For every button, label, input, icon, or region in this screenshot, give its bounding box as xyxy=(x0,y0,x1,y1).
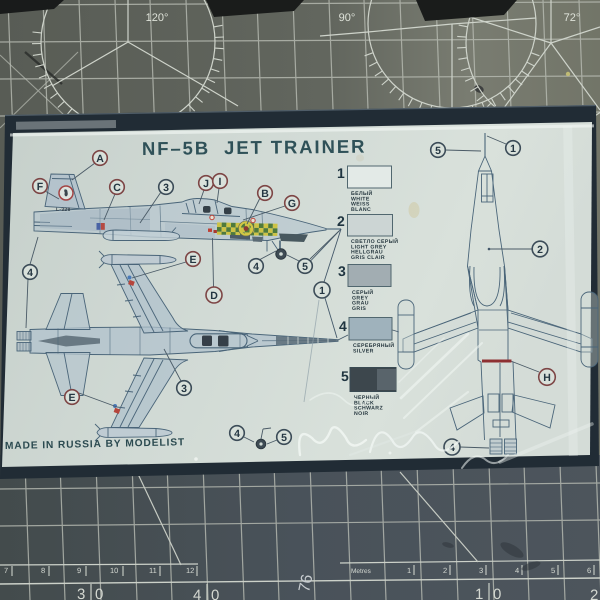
svg-text:1: 1 xyxy=(407,566,411,575)
svg-text:2: 2 xyxy=(537,244,543,256)
svg-text:SILVER: SILVER xyxy=(353,348,374,354)
svg-text:3: 3 xyxy=(163,182,169,194)
svg-text:3: 3 xyxy=(479,566,483,575)
svg-text:0: 0 xyxy=(211,587,219,600)
svg-text:L-328: L-328 xyxy=(56,207,71,213)
svg-text:120°: 120° xyxy=(146,12,169,24)
svg-text:90°: 90° xyxy=(339,12,356,24)
svg-text:1: 1 xyxy=(337,165,345,181)
svg-text:J: J xyxy=(203,178,209,190)
svg-text:4: 4 xyxy=(234,428,240,440)
svg-text:GRIS: GRIS xyxy=(352,306,366,312)
svg-text:E: E xyxy=(189,254,196,266)
svg-text:1: 1 xyxy=(319,285,325,297)
svg-text:6: 6 xyxy=(587,566,591,575)
svg-text:8: 8 xyxy=(41,566,45,575)
svg-text:G: G xyxy=(288,198,296,210)
svg-text:4: 4 xyxy=(27,267,33,279)
svg-text:12: 12 xyxy=(186,566,194,575)
svg-text:GRIS CLAIR: GRIS CLAIR xyxy=(351,255,385,261)
svg-text:7: 7 xyxy=(4,566,8,575)
svg-text:NOIR: NOIR xyxy=(354,411,369,417)
svg-text:5: 5 xyxy=(281,432,287,444)
svg-text:1: 1 xyxy=(475,586,483,600)
svg-text:3: 3 xyxy=(181,383,187,395)
svg-text:C: C xyxy=(113,182,121,194)
svg-text:5: 5 xyxy=(551,566,555,575)
svg-text:2: 2 xyxy=(443,566,447,575)
svg-text:4: 4 xyxy=(193,587,201,600)
svg-text:4: 4 xyxy=(253,261,259,273)
svg-text:9: 9 xyxy=(77,566,81,575)
svg-text:F: F xyxy=(37,181,44,193)
svg-text:2: 2 xyxy=(337,213,345,229)
svg-text:2: 2 xyxy=(590,587,598,600)
svg-text:I: I xyxy=(219,176,222,188)
svg-text:4: 4 xyxy=(515,566,519,575)
svg-text:H: H xyxy=(543,372,551,384)
svg-text:D: D xyxy=(210,290,218,302)
svg-text:5: 5 xyxy=(341,368,349,384)
svg-text:A: A xyxy=(96,153,104,165)
svg-text:5: 5 xyxy=(302,261,308,273)
svg-text:NF–5B JET TRAINER: NF–5B JET TRAINER xyxy=(142,136,367,159)
svg-text:10: 10 xyxy=(110,566,118,575)
svg-text:4: 4 xyxy=(339,318,347,334)
svg-text:11: 11 xyxy=(149,566,157,575)
svg-text:72°: 72° xyxy=(564,12,581,24)
svg-text:B: B xyxy=(261,188,269,200)
svg-text:E: E xyxy=(68,392,75,404)
svg-text:76: 76 xyxy=(296,573,316,594)
svg-text:1: 1 xyxy=(510,143,516,155)
svg-text:3: 3 xyxy=(77,586,85,600)
svg-text:Metres: Metres xyxy=(351,568,372,575)
svg-text:0: 0 xyxy=(95,586,103,600)
svg-text:3: 3 xyxy=(338,263,346,279)
svg-text:BLANC: BLANC xyxy=(351,207,371,213)
svg-text:5: 5 xyxy=(435,145,441,157)
svg-text:0: 0 xyxy=(493,586,501,600)
